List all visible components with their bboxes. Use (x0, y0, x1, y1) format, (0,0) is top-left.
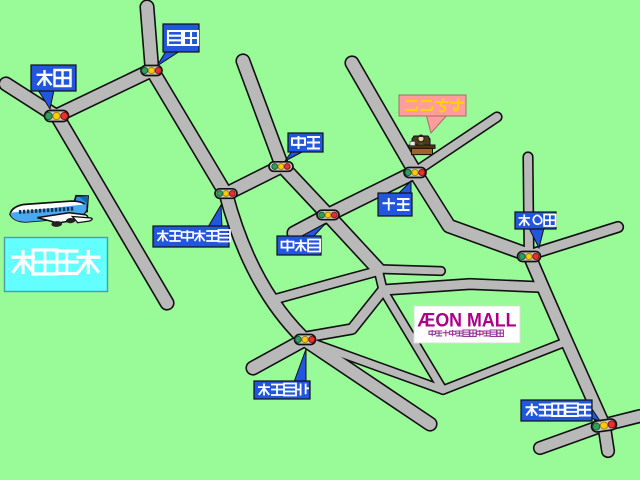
svg-text:ÆON MALL: ÆON MALL (418, 311, 517, 332)
